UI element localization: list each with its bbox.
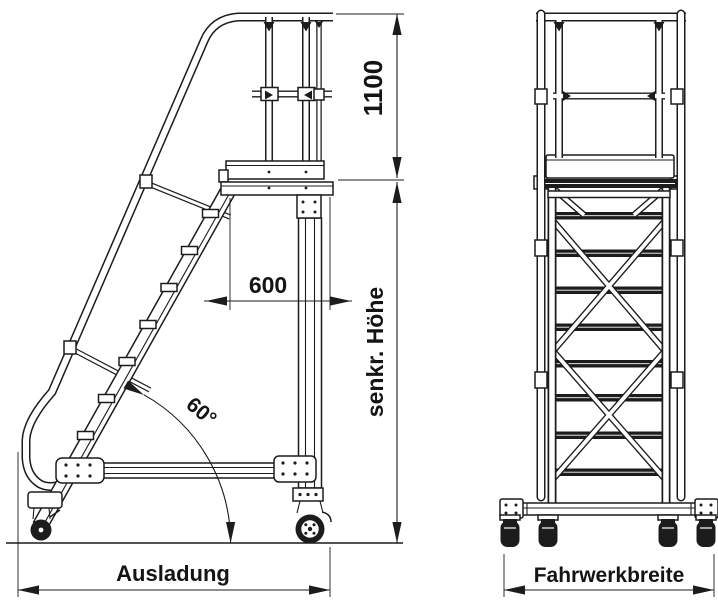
guardrail-height-label: 1100 xyxy=(358,60,388,116)
rail-fittings-front xyxy=(554,22,665,101)
dim-vertical-height: senkr. Höhe xyxy=(362,182,402,543)
dim-guardrail-height: 1100 xyxy=(358,14,402,178)
strut-plates xyxy=(56,458,104,483)
caster xyxy=(538,515,558,547)
stair-handrail xyxy=(26,17,333,487)
caster xyxy=(696,515,716,547)
platform-side xyxy=(219,161,333,218)
platform-front xyxy=(534,155,684,198)
dim-chassis-width: Fahrwerkbreite xyxy=(504,564,714,595)
front-view xyxy=(500,14,718,547)
rear-caster-side xyxy=(296,512,332,544)
platform-depth-label: 600 xyxy=(249,272,287,298)
caster xyxy=(500,515,520,547)
vertical-height-label: senkr. Höhe xyxy=(362,287,388,417)
side-view xyxy=(6,17,403,544)
technical-drawing-page: 1100 senkr. Höhe 600 60° Aus xyxy=(0,0,718,600)
handrail-braces xyxy=(64,175,230,390)
axle-beam xyxy=(500,499,718,518)
overhang-label: Ausladung xyxy=(116,561,230,586)
dim-stair-angle: 60° xyxy=(124,381,236,543)
casters-front xyxy=(500,515,716,547)
steps-front xyxy=(548,212,670,476)
chassis-width-label: Fahrwerkbreite xyxy=(534,564,685,587)
strut-plate-right xyxy=(274,456,316,482)
stair-angle-label: 60° xyxy=(182,393,221,431)
platform-stair-drawing: 1100 senkr. Höhe 600 60° Aus xyxy=(0,0,718,600)
caster xyxy=(658,515,678,547)
platform-guardrail-front xyxy=(536,17,686,158)
dim-overhang: Ausladung xyxy=(18,561,330,595)
